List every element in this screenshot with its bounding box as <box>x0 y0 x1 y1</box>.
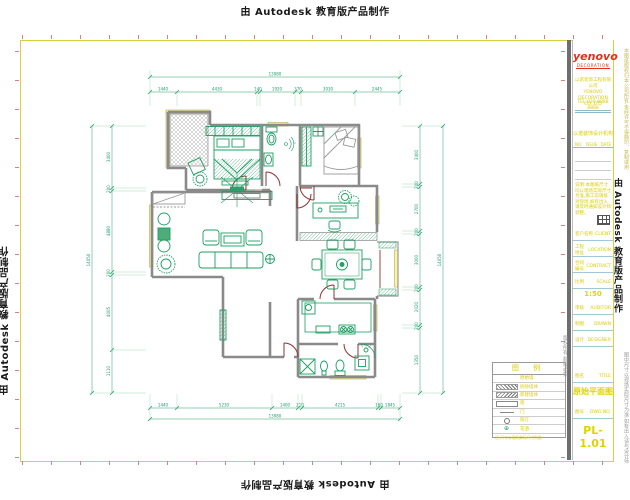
field-client: 客户名称 CLIENT <box>573 228 613 241</box>
field-location: 工程地址 LOCATION <box>573 244 613 257</box>
field-label: 比例 <box>575 279 584 285</box>
svg-text:5230: 5230 <box>219 403 230 408</box>
field-label: 设计 <box>575 337 584 343</box>
svg-text:4215: 4215 <box>335 403 346 408</box>
svg-text:200: 200 <box>414 322 419 330</box>
field-en: DWG NO. <box>590 410 611 415</box>
legend-row: 门 <box>493 409 565 417</box>
field-en: AUDITOR <box>590 306 611 311</box>
sofa-set <box>199 230 263 268</box>
field-label: 图号 <box>575 409 584 415</box>
symbol-new-wall <box>493 392 520 398</box>
svg-text:4430: 4430 <box>212 87 223 92</box>
legend-title: 图 例 <box>493 363 565 375</box>
title-block: yenovo DECORATION 以诺装饰工程有限公司 YENOVO DECO… <box>572 40 613 460</box>
field-label: 审核 <box>575 305 584 311</box>
svg-text:3400: 3400 <box>106 151 111 162</box>
svg-text:1110: 1110 <box>106 365 111 376</box>
symbol-window <box>493 401 520 407</box>
svg-text:3030: 3030 <box>323 87 334 92</box>
study-plants <box>339 191 360 207</box>
svg-text:160: 160 <box>375 403 383 408</box>
symbol-shower-icon: ⊕ <box>493 426 520 432</box>
notes-paragraph: 说明:本图纸尺寸均以现场实际尺寸为准,施工前请核对现场,如有出入请及时通知设计师… <box>573 183 613 216</box>
bath-sink <box>321 361 328 375</box>
company-line: 以诺装饰设计机构 <box>573 130 613 137</box>
cabinet-top-left <box>153 193 185 207</box>
field-en: TITLE <box>599 374 611 379</box>
wc-shower <box>285 137 297 151</box>
legend-label: 原始墙 <box>520 376 565 381</box>
revision-header: NO. ISSUE DATE <box>573 142 613 148</box>
disclaimer-right-top: 本图纸版权归本公司所有,未经许可不得翻印、复制或用于其他用途。 <box>622 48 630 173</box>
living-plant <box>157 255 175 273</box>
field-scale: 比例 SCALE <box>573 276 613 289</box>
balcony-floor-hatch <box>170 114 208 166</box>
field-label: 制图 <box>575 321 584 327</box>
field-en: CLIENT <box>595 232 611 237</box>
field-dwgno: 图号 DWG NO. <box>573 406 613 419</box>
svg-text:200: 200 <box>106 269 111 277</box>
svg-text:3400: 3400 <box>414 149 419 160</box>
field-label: 合同编号 <box>575 260 586 272</box>
bedroom2-wardrobe <box>302 127 311 166</box>
dining-set <box>312 240 371 289</box>
field-en: SCALE <box>597 280 611 285</box>
rev-issue: ISSUE <box>586 142 598 147</box>
revision-row <box>575 170 611 180</box>
field-drawn: 制图 DRAWN <box>573 318 613 331</box>
door-wc <box>266 172 280 186</box>
svg-text:370: 370 <box>294 87 302 92</box>
bay-sills <box>379 242 396 295</box>
bath-toilet <box>335 360 345 376</box>
svg-text:200: 200 <box>414 228 419 236</box>
field-en: DESIGNER <box>588 338 611 343</box>
svg-text:2445: 2445 <box>372 87 383 92</box>
legend-row: 原始墙 <box>493 375 565 383</box>
rev-date: DATE <box>601 142 611 147</box>
rev-no: NO. <box>575 142 582 147</box>
svg-text:210: 210 <box>296 403 304 408</box>
logo-subtitle: DECORATION <box>576 63 610 69</box>
divider <box>575 112 611 113</box>
field-label: 工程地址 <box>575 244 588 256</box>
wc-toilet <box>266 127 277 145</box>
field-title: 图名 TITLE <box>573 370 613 383</box>
svg-text:4880: 4880 <box>106 225 111 236</box>
legend-footnote: 注:尺寸以现场实际尺寸为准 <box>493 434 565 442</box>
drawing-number: PL-1.01 <box>573 424 613 450</box>
svg-text:1350: 1350 <box>414 354 419 365</box>
divider <box>575 110 611 111</box>
drawing-name: 原始平面图 <box>573 386 613 397</box>
field-label: 客户名称 <box>575 231 593 237</box>
legend-label: 新建墙体 <box>520 393 565 398</box>
legend-row: 窗 <box>493 400 565 408</box>
svg-text:13980: 13980 <box>269 72 282 77</box>
field-label: 图名 <box>575 373 584 379</box>
svg-text:1440: 1440 <box>158 403 169 408</box>
field-designer: 设计 DESIGNER <box>573 334 613 347</box>
study-chair <box>328 221 341 232</box>
svg-text:1440: 1440 <box>158 87 169 92</box>
legend-label: 门 <box>520 410 565 415</box>
svg-text:200: 200 <box>106 185 111 193</box>
field-contract: 合同编号 CONTRACT <box>573 260 613 273</box>
study-window-wall <box>300 233 377 241</box>
svg-text:200: 200 <box>414 284 419 292</box>
disclaimer-inner-left: 版权所有 翻版必究 <box>561 335 569 455</box>
field-en: CONTRACT <box>586 264 611 269</box>
svg-text:13980: 13980 <box>269 414 282 419</box>
legend-row: 拆除墙体 <box>493 383 565 391</box>
cad-sheet: 由 Autodesk 教育版产品制作 由 Autodesk 教育版产品制作 由 … <box>0 0 630 500</box>
master-wardrobe <box>206 127 260 136</box>
svg-text:14050: 14050 <box>437 253 442 266</box>
svg-text:1920: 1920 <box>272 87 283 92</box>
field-en: LOCATION <box>588 248 611 253</box>
symbol-downlight <box>493 418 520 424</box>
hall-cabinet <box>220 310 226 340</box>
symbol-demolish-wall <box>493 384 520 390</box>
scale-value: 1:50 <box>573 290 613 298</box>
field-auditor: 审核 AUDITOR <box>573 302 613 315</box>
svg-text:4005: 4005 <box>106 306 111 317</box>
bedroom2-bed <box>324 127 358 174</box>
legend: 图 例 原始墙 拆除墙体 新建墙体 窗 门 筒灯 ⊕ 花洒 注:尺寸以现 <box>492 362 566 438</box>
legend-label: 花洒 <box>520 427 565 432</box>
bedroom2-box <box>313 127 323 136</box>
legend-row: 新建墙体 <box>493 392 565 400</box>
washing-machine <box>300 359 315 374</box>
side-tables <box>158 213 170 252</box>
svg-text:14050: 14050 <box>86 253 91 266</box>
symbol-door <box>493 412 520 413</box>
field-en: DRAWN <box>594 322 611 327</box>
disclaimer-right-bottom: 图中尺寸以现场实际尺寸为准,如有出入请与设计师联系。 <box>622 352 630 467</box>
svg-text:1845: 1845 <box>385 403 396 408</box>
kitchen-counter <box>302 301 371 334</box>
svg-text:2700: 2700 <box>414 203 419 214</box>
legend-label: 筒灯 <box>520 418 565 423</box>
svg-text:2020: 2020 <box>414 301 419 312</box>
svg-text:1400: 1400 <box>280 403 291 408</box>
legend-label: 拆除墙体 <box>520 385 565 390</box>
legend-row: ⊕ 花洒 <box>493 425 565 433</box>
floor-lamp <box>266 255 275 264</box>
svg-text:200: 200 <box>414 181 419 189</box>
svg-text:140: 140 <box>254 87 262 92</box>
north-grid-icon <box>597 215 610 225</box>
svg-text:3000: 3000 <box>414 254 419 265</box>
wc-basin <box>264 153 273 166</box>
door-entry <box>284 343 298 357</box>
legend-label: 窗 <box>520 401 565 406</box>
logo: yenovo <box>573 52 613 62</box>
company-name-cn: 以诺装饰工程有限公司 <box>573 78 613 90</box>
